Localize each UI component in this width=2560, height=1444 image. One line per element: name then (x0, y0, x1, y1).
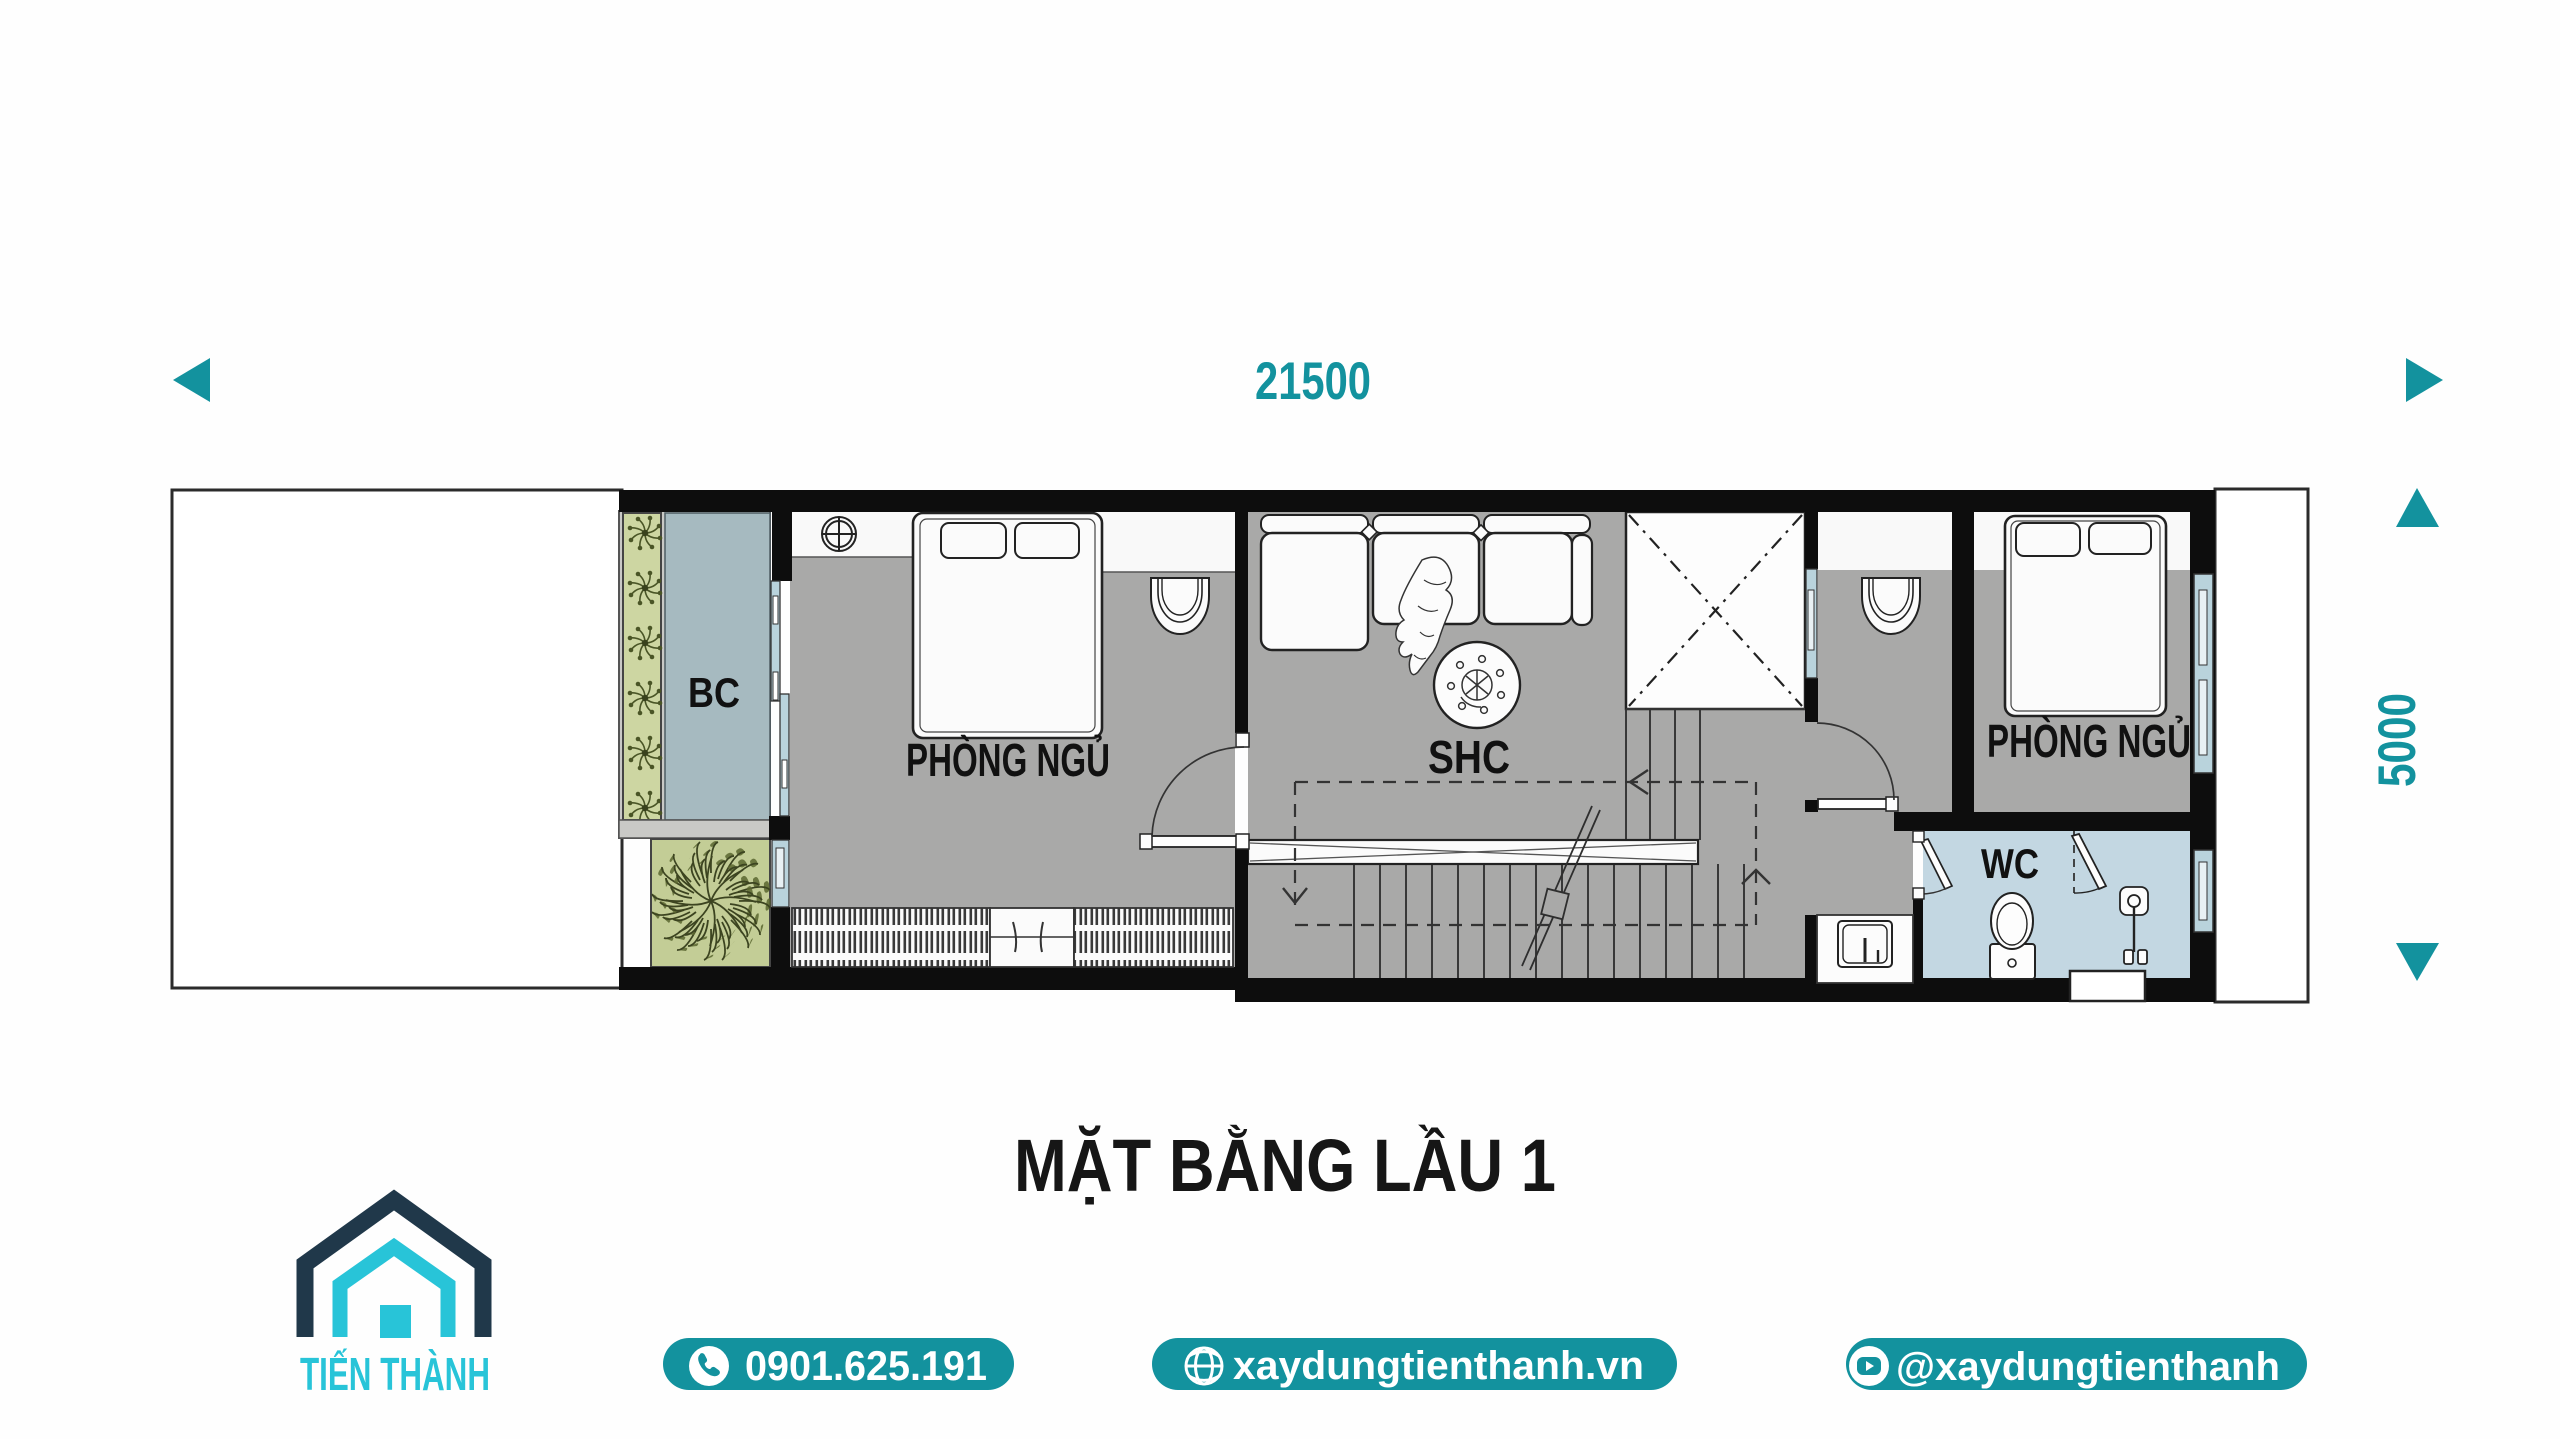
svg-text:0901.625.191: 0901.625.191 (745, 1342, 987, 1389)
svg-text:TIẾN THÀNH: TIẾN THÀNH (300, 1348, 490, 1400)
svg-text:MẶT BẰNG LẦU 1: MẶT BẰNG LẦU 1 (1014, 1124, 1556, 1207)
svg-text:SHC: SHC (1428, 731, 1510, 783)
svg-text:WC: WC (1981, 840, 2039, 887)
svg-text:5000: 5000 (2368, 693, 2427, 787)
svg-text:PHÒNG NGỦ: PHÒNG NGỦ (1987, 715, 2191, 767)
svg-text:PHÒNG NGỦ: PHÒNG NGỦ (906, 734, 1110, 786)
svg-text:xaydungtienthanh.vn: xaydungtienthanh.vn (1233, 1344, 1644, 1388)
svg-text:BC: BC (688, 669, 740, 716)
svg-text:21500: 21500 (1255, 352, 1371, 411)
svg-text:@xaydungtienthanh: @xaydungtienthanh (1896, 1345, 2280, 1389)
